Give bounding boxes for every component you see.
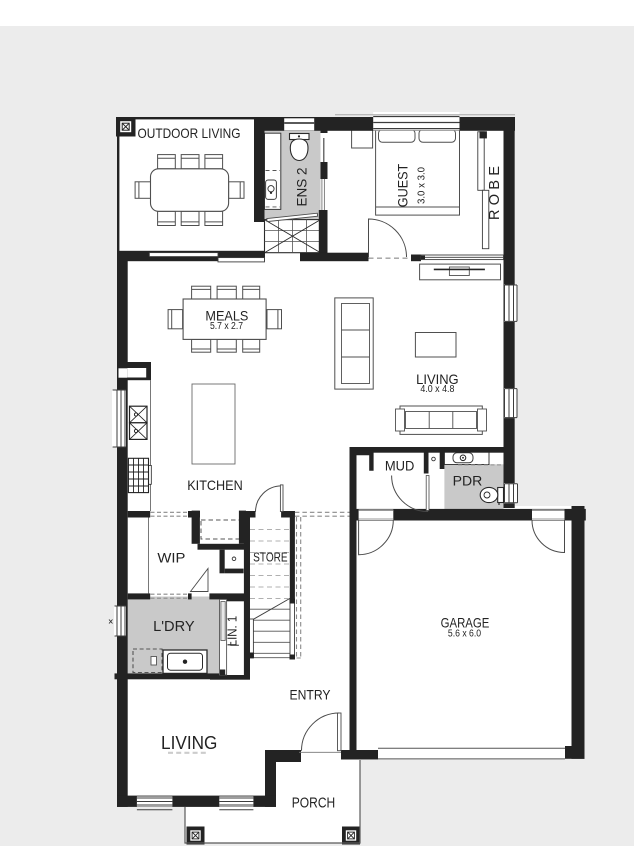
svg-text:5.7 x 2.7: 5.7 x 2.7 xyxy=(210,321,243,332)
svg-text:LIN. 1: LIN. 1 xyxy=(226,616,240,647)
svg-text:STORE: STORE xyxy=(253,550,288,565)
svg-text:MUD: MUD xyxy=(385,459,415,474)
svg-text:WIP: WIP xyxy=(157,551,185,566)
svg-text:PDR: PDR xyxy=(453,474,483,489)
svg-text:3.0 x 3.0: 3.0 x 3.0 xyxy=(417,167,428,204)
svg-text:L'DRY: L'DRY xyxy=(153,619,195,635)
svg-text:GUEST: GUEST xyxy=(395,163,411,207)
svg-text:ENS 2: ENS 2 xyxy=(295,168,310,207)
svg-text:4.0 x 4.8: 4.0 x 4.8 xyxy=(420,384,454,395)
svg-text:OUTDOOR LIVING: OUTDOOR LIVING xyxy=(138,126,241,141)
svg-text:LIVING: LIVING xyxy=(161,732,217,753)
svg-text:5.6 x 6.0: 5.6 x 6.0 xyxy=(448,628,482,639)
svg-text:PORCH: PORCH xyxy=(292,796,335,812)
svg-text:KITCHEN: KITCHEN xyxy=(187,478,243,493)
svg-text:ENTRY: ENTRY xyxy=(290,687,331,702)
